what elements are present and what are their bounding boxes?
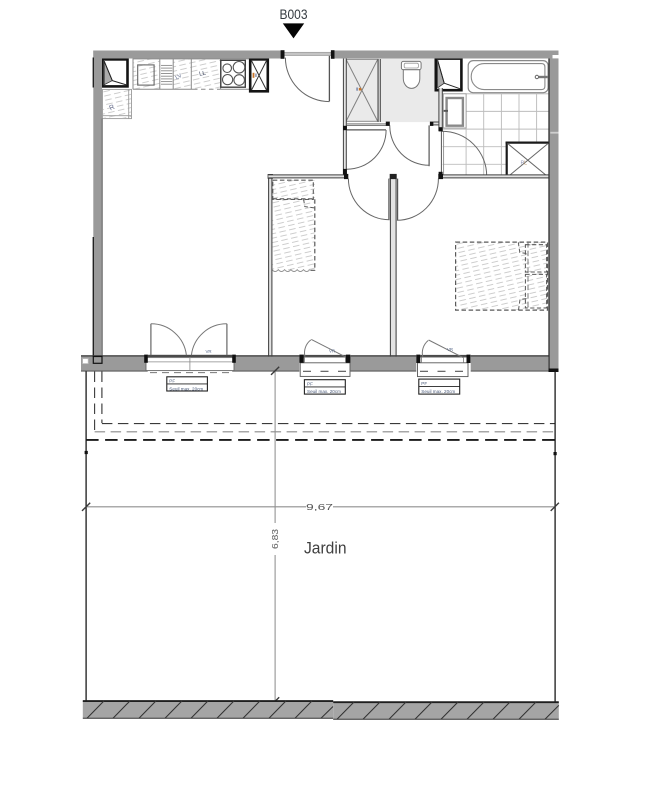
- svg-text:Seuil max. 20cm: Seuil max. 20cm: [421, 389, 455, 394]
- svg-text:Jardin: Jardin: [304, 539, 347, 558]
- svg-text:VR: VR: [329, 348, 335, 353]
- svg-text:B003: B003: [280, 7, 308, 23]
- svg-text:Seuil max. 20cm: Seuil max. 20cm: [169, 386, 203, 391]
- svg-text:PF: PF: [169, 379, 175, 384]
- svg-text:9,67: 9,67: [306, 502, 333, 512]
- svg-text:PF: PF: [307, 381, 313, 386]
- svg-text:PL: PL: [521, 161, 528, 167]
- svg-text:VR: VR: [206, 349, 212, 354]
- svg-text:PF: PF: [421, 381, 427, 386]
- svg-text:VR: VR: [447, 347, 453, 352]
- svg-text:Seuil max. 20cm: Seuil max. 20cm: [307, 389, 341, 394]
- svg-text:6,83: 6,83: [271, 528, 280, 549]
